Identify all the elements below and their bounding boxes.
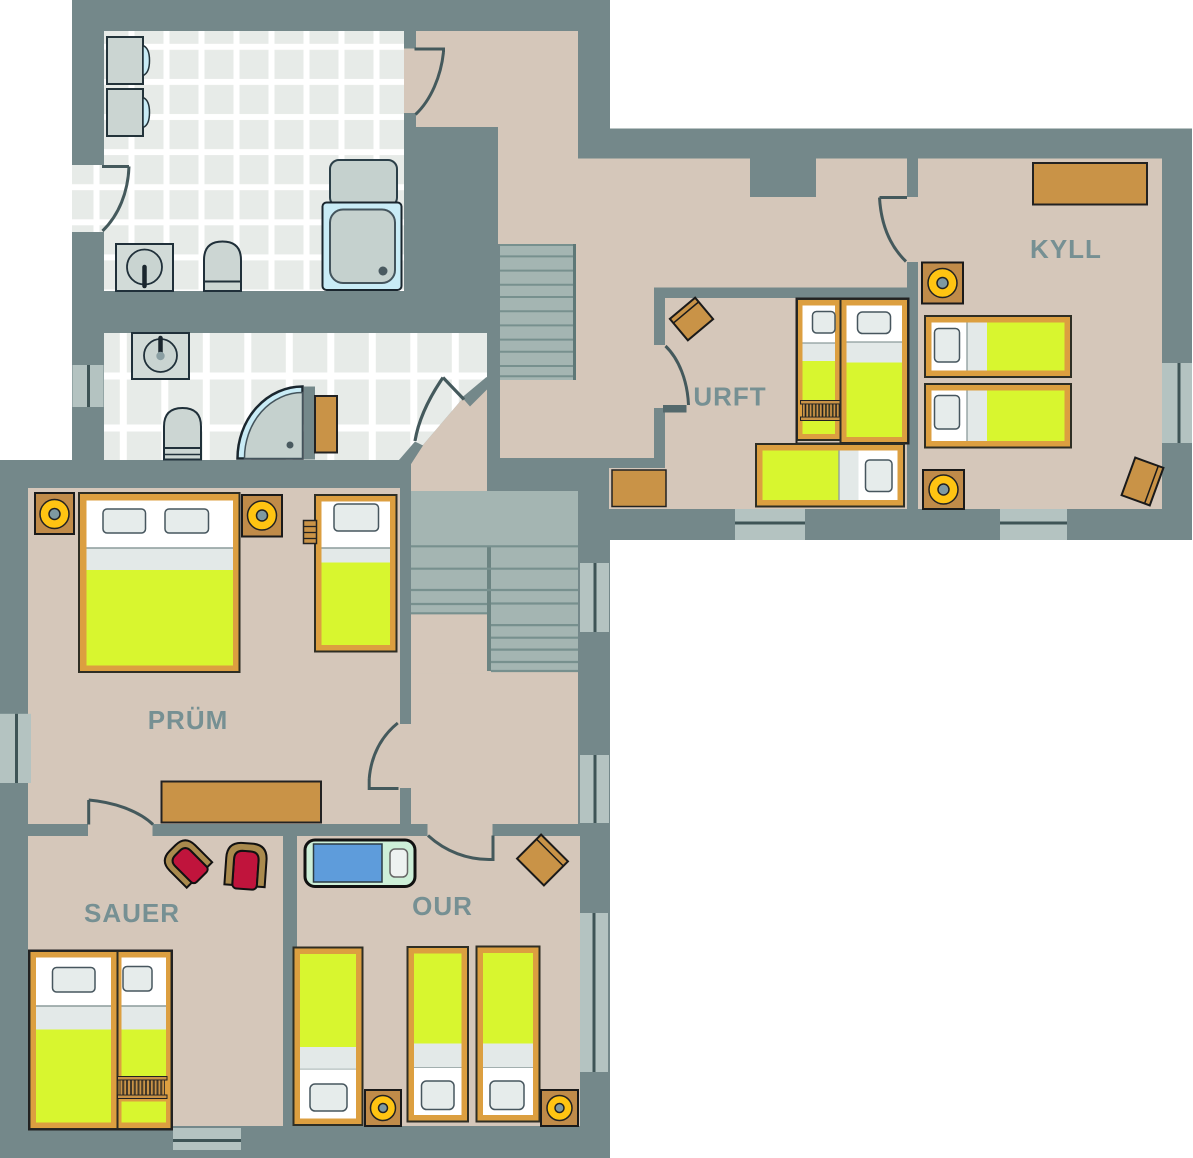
svg-text:KYLL: KYLL bbox=[1030, 234, 1102, 264]
svg-text:PRÜM: PRÜM bbox=[148, 705, 229, 735]
svg-text:URFT: URFT bbox=[693, 382, 766, 412]
svg-text:SAUER: SAUER bbox=[84, 898, 180, 928]
svg-text:OUR: OUR bbox=[412, 891, 473, 921]
